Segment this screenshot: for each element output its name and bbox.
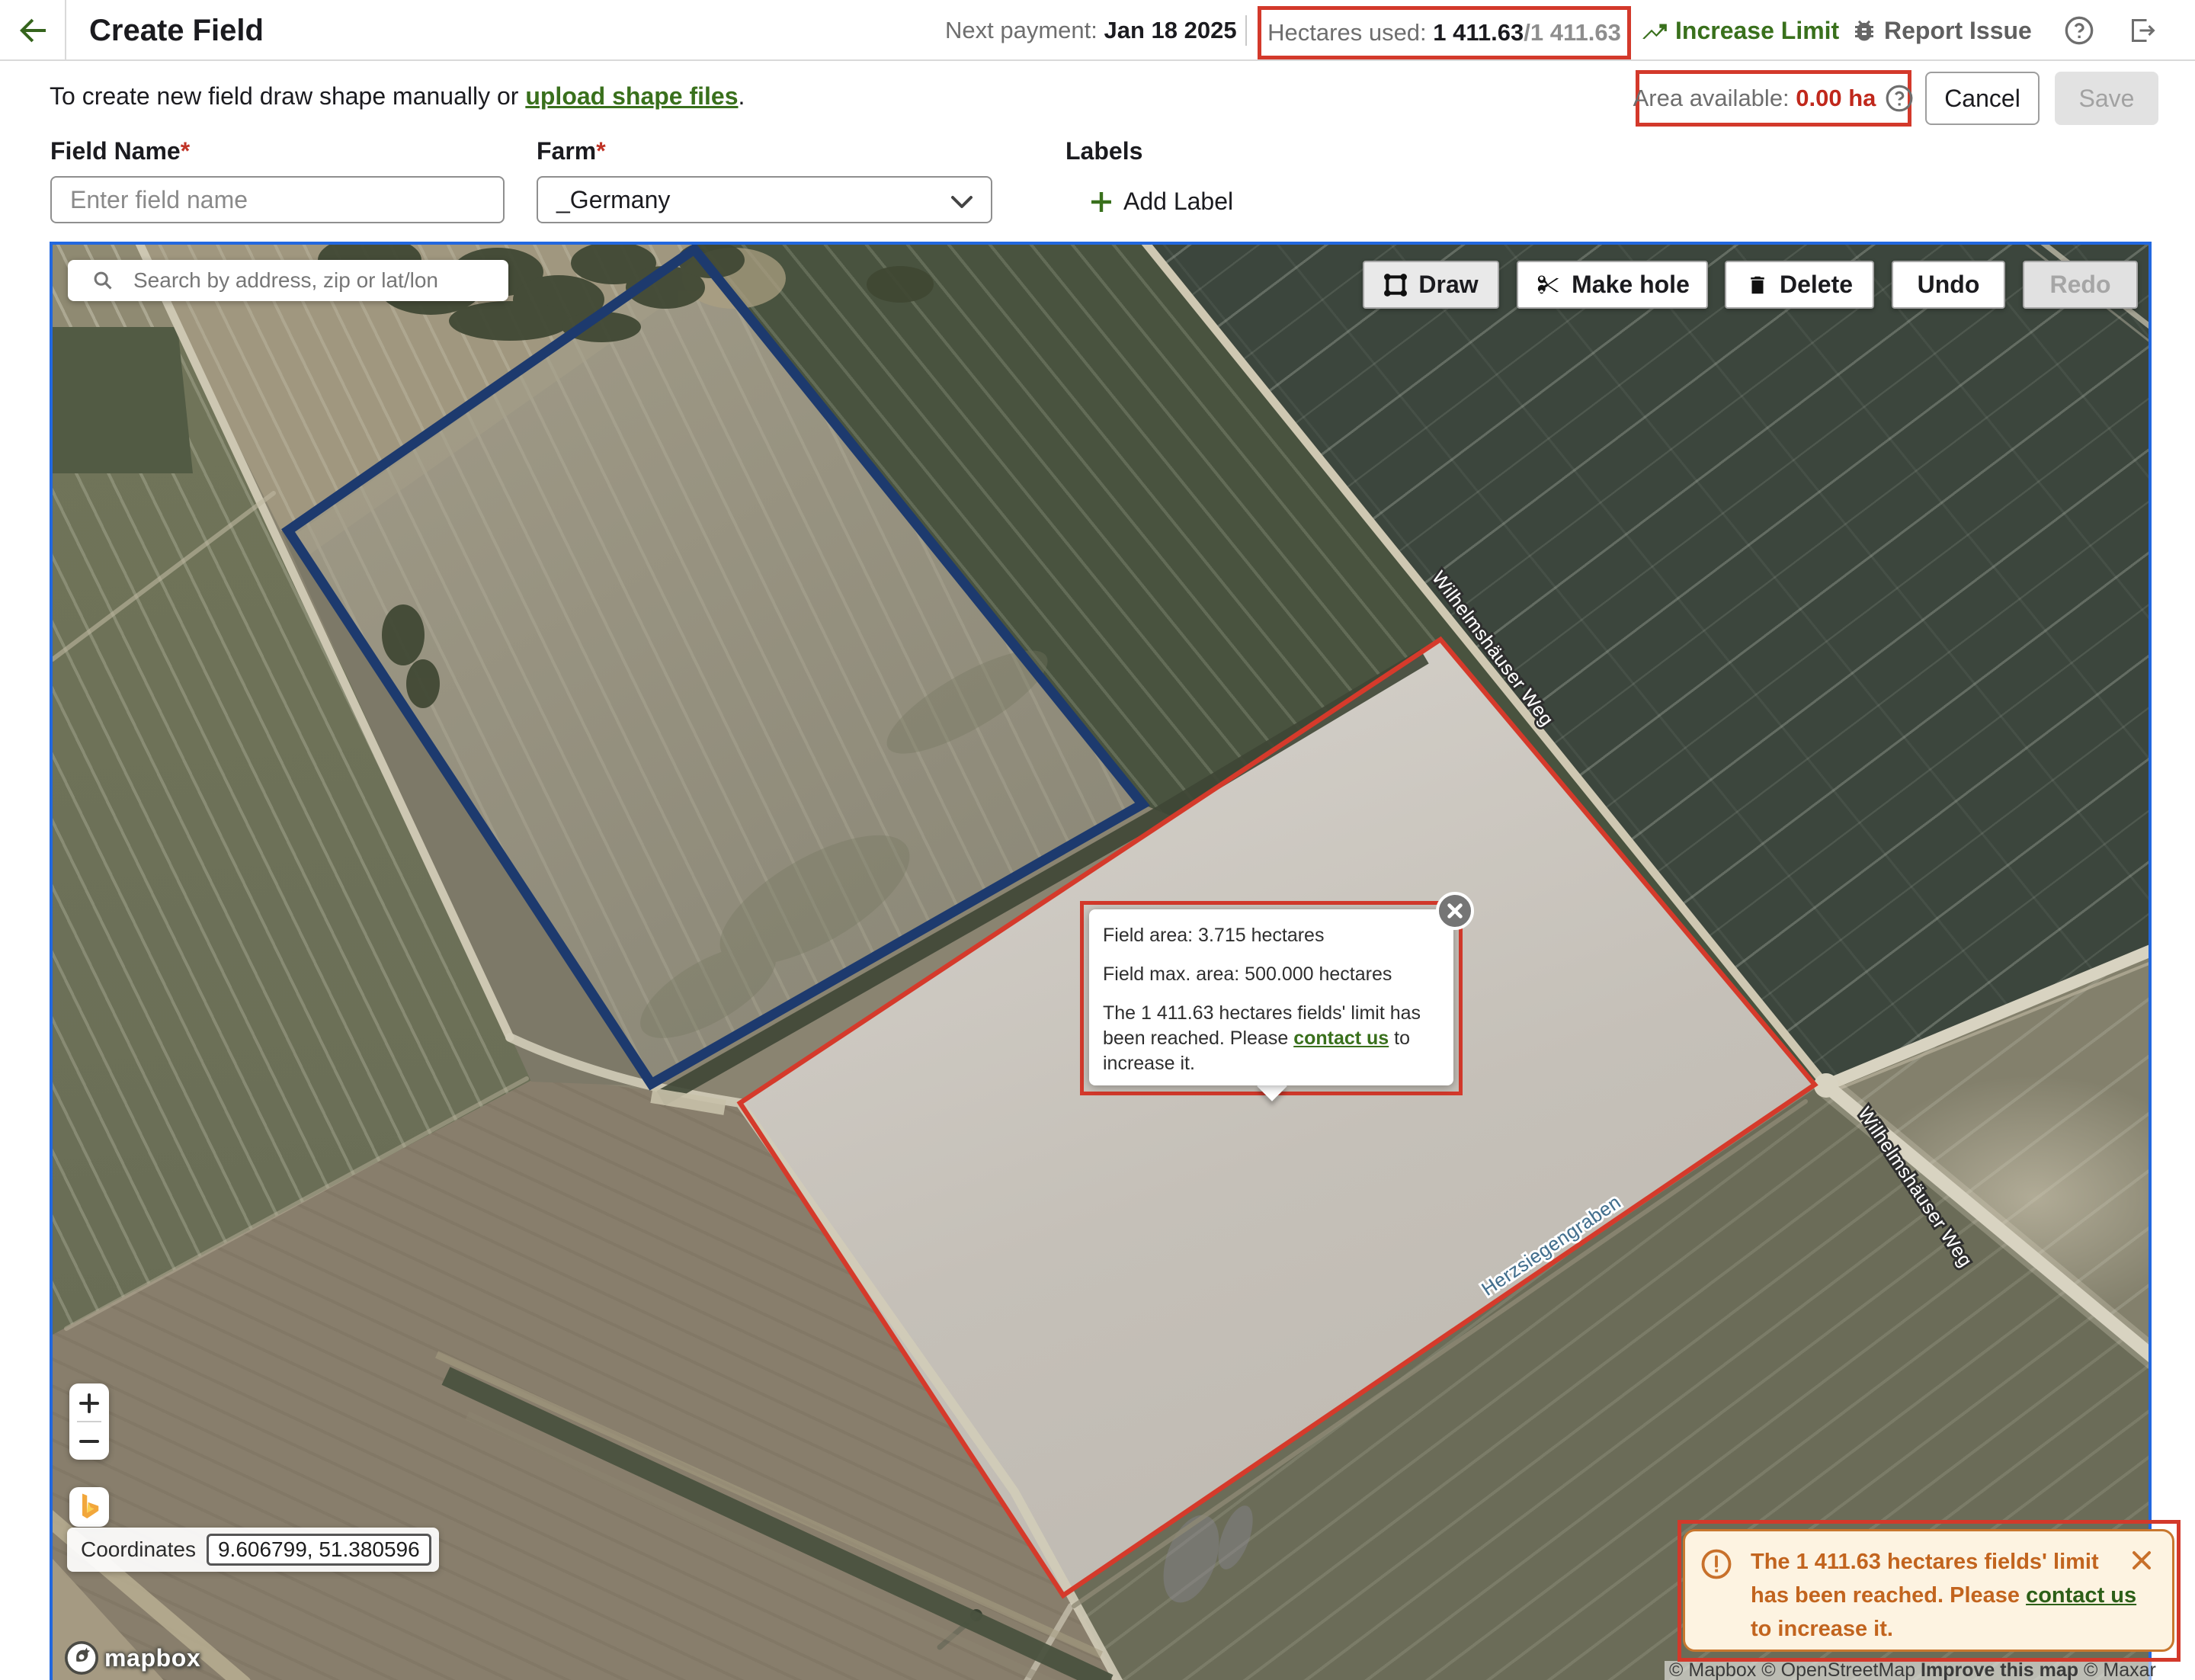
svg-text:Herzsiegengraben: Herzsiegengraben [1478, 1191, 1625, 1300]
